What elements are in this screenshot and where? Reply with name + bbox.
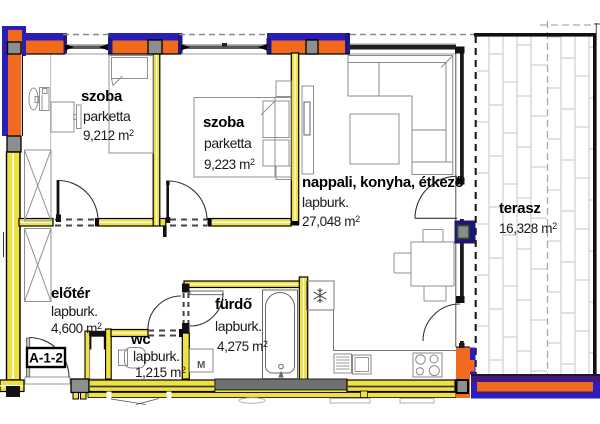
svg-text:szoba: szoba xyxy=(81,88,123,105)
svg-text:előtér: előtér xyxy=(51,285,91,302)
svg-text:szoba: szoba xyxy=(203,114,245,131)
svg-text:wc: wc xyxy=(130,331,150,348)
svg-text:1,215 m2: 1,215 m2 xyxy=(135,365,186,380)
svg-text:M: M xyxy=(197,360,205,371)
svg-text:4,275 m2: 4,275 m2 xyxy=(217,339,268,354)
svg-text:parketta: parketta xyxy=(204,135,252,151)
svg-text:4,600 m2: 4,600 m2 xyxy=(51,321,102,336)
svg-text:nappali, konyha, étkező: nappali, konyha, étkező xyxy=(302,174,464,191)
svg-text:parketta: parketta xyxy=(83,108,131,124)
svg-text:lapburk.: lapburk. xyxy=(302,194,349,210)
svg-text:lapburk.: lapburk. xyxy=(133,348,180,364)
svg-text:9,223 m2: 9,223 m2 xyxy=(204,157,255,172)
svg-text:lapburk.: lapburk. xyxy=(51,303,98,319)
svg-text:terasz: terasz xyxy=(499,200,541,217)
svg-text:16,328 m2: 16,328 m2 xyxy=(499,221,557,236)
svg-text:A-1-2: A-1-2 xyxy=(29,351,63,366)
svg-text:27,048 m2: 27,048 m2 xyxy=(302,214,360,229)
svg-text:lapburk.: lapburk. xyxy=(215,318,262,334)
svg-text:9,212 m2: 9,212 m2 xyxy=(83,128,134,143)
svg-text:fürdő: fürdő xyxy=(215,296,252,313)
